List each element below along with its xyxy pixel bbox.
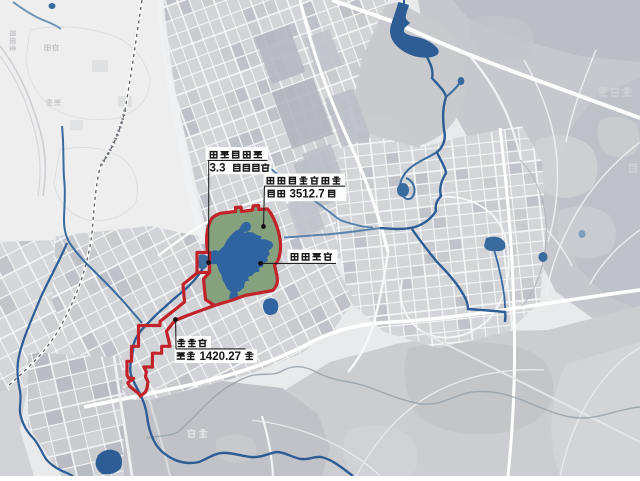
- svg-text:3.3: 3.3: [210, 163, 226, 175]
- svg-text:1420.27: 1420.27: [200, 351, 242, 363]
- svg-text:3512.7: 3512.7: [290, 188, 325, 200]
